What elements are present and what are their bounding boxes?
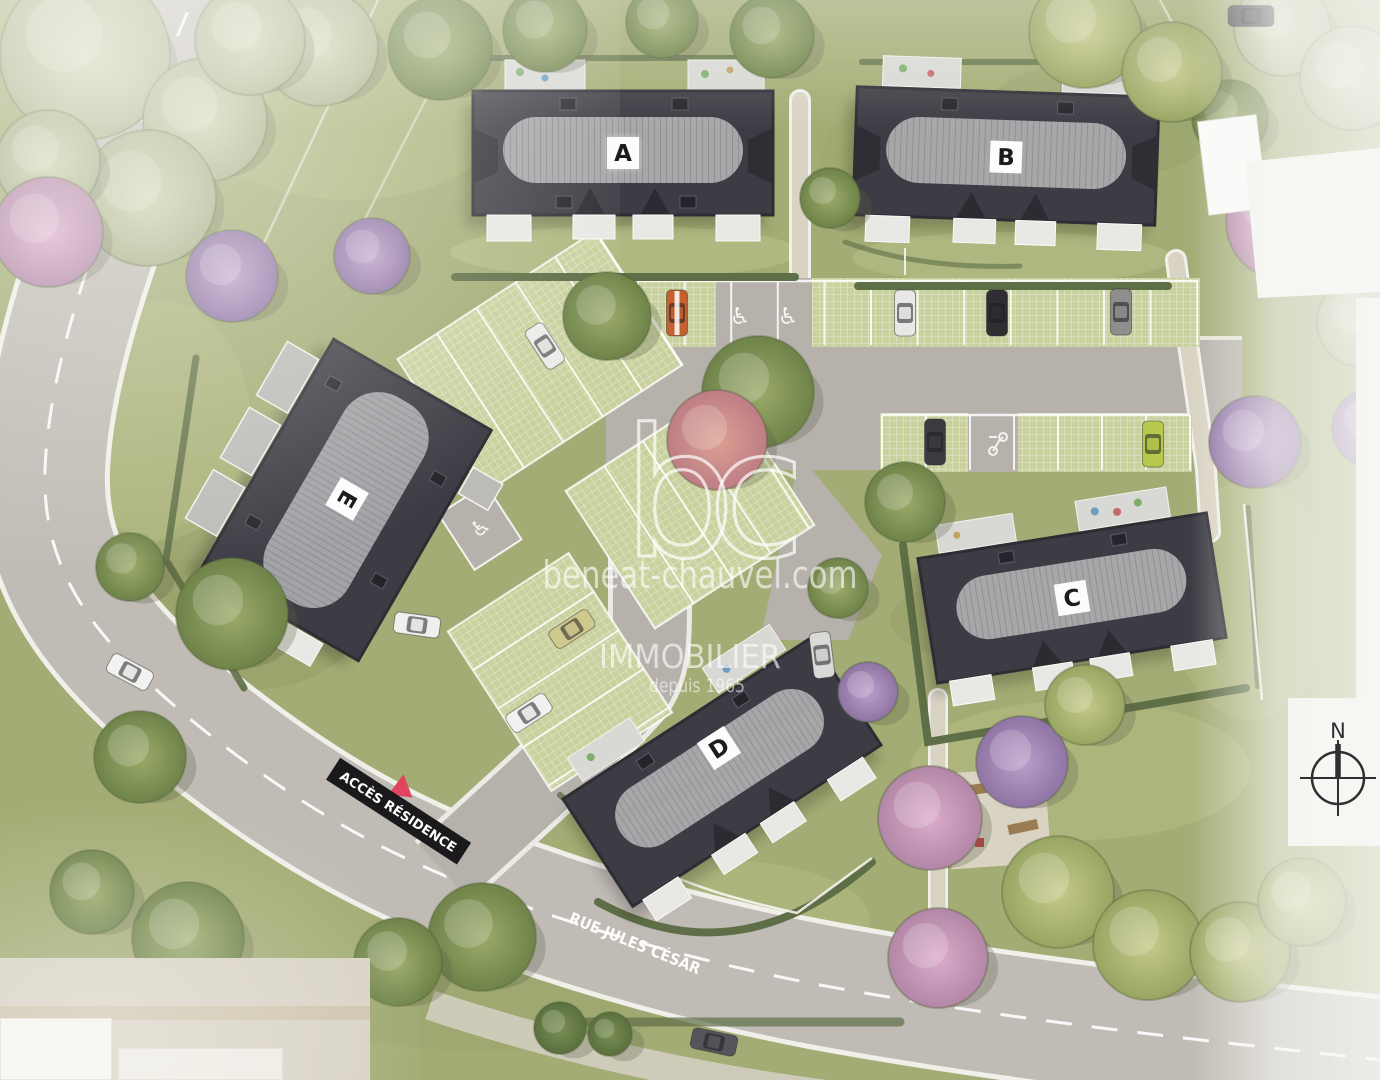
- tree-highlight: [444, 899, 493, 948]
- svg-text:A: A: [614, 141, 632, 167]
- svg-text:B: B: [997, 145, 1015, 172]
- building-label-a: A: [607, 137, 639, 169]
- tree-highlight: [542, 1010, 565, 1033]
- car-roof: [815, 648, 828, 661]
- tree-highlight: [1110, 907, 1160, 957]
- car: [895, 290, 916, 336]
- site-plan-canvas: ♿ ♿ ♿: [0, 0, 1380, 1080]
- tree-highlight: [894, 782, 941, 829]
- car: [987, 290, 1008, 336]
- tree-highlight: [108, 725, 149, 766]
- tree-highlight: [1019, 853, 1069, 903]
- watermark-brand: IMMOBILIER: [599, 637, 781, 676]
- car-roof: [410, 618, 424, 632]
- building-label-b: B: [989, 140, 1022, 173]
- tree-highlight: [595, 1019, 615, 1039]
- car: [1143, 421, 1164, 467]
- tree-highlight: [847, 671, 874, 698]
- haze-bottom-left: [0, 780, 420, 1080]
- accessible-parking-icon: ♿: [730, 304, 751, 330]
- tree-highlight: [809, 177, 836, 204]
- car-roof: [899, 307, 911, 319]
- tree-highlight: [877, 474, 913, 510]
- car-roof: [707, 1035, 721, 1049]
- car: [667, 290, 688, 336]
- tree-highlight: [990, 730, 1031, 771]
- car: [1111, 289, 1132, 335]
- site-plan-rendering: ♿ ♿ ♿: [0, 0, 1380, 1080]
- accessible-parking-icon: ♿: [778, 304, 799, 330]
- building-label-c: C: [1054, 580, 1091, 617]
- car-roof: [1115, 306, 1127, 318]
- haze-top: [0, 0, 1380, 130]
- tree-highlight: [193, 575, 243, 625]
- watermark-since: depuis 1965: [649, 675, 745, 697]
- watermark-website: beneat-chauvel.com: [543, 553, 858, 597]
- tree-highlight: [1057, 677, 1093, 713]
- haze-right: [1190, 0, 1380, 1080]
- tree-highlight: [903, 923, 948, 968]
- car-roof: [929, 436, 941, 448]
- car-stripe: [675, 291, 680, 335]
- car-roof: [1147, 438, 1159, 450]
- car: [925, 419, 946, 465]
- car-roof: [991, 307, 1003, 319]
- compass-north-label: N: [1330, 719, 1346, 743]
